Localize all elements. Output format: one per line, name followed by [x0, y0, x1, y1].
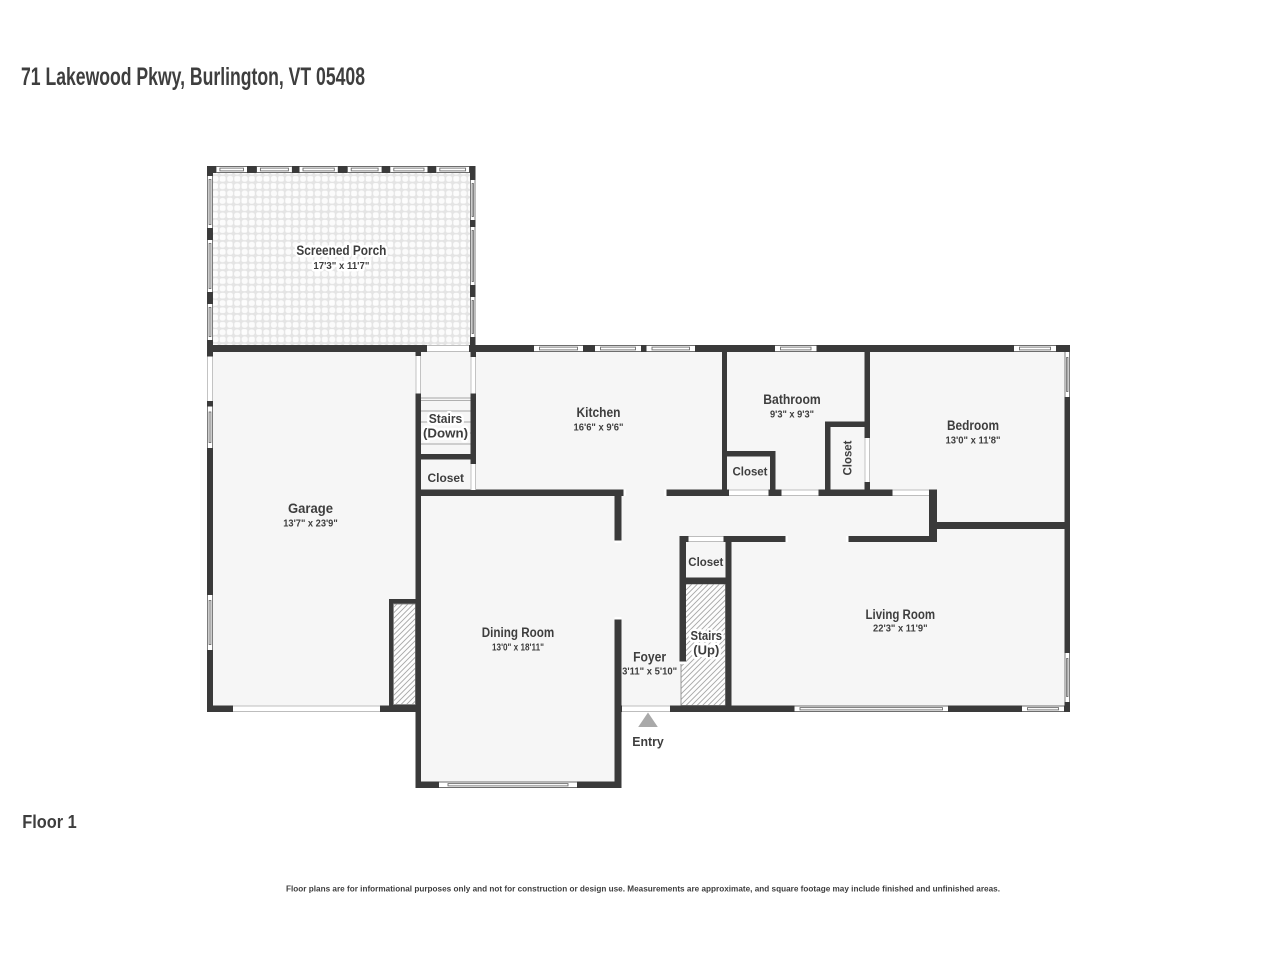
svg-text:13'7" x 23'9": 13'7" x 23'9" [283, 519, 338, 530]
svg-text:Stairs: Stairs [429, 411, 463, 426]
svg-text:22'3" x 11'9": 22'3" x 11'9" [873, 624, 928, 635]
svg-text:13'0" x 18'11": 13'0" x 18'11" [492, 643, 544, 654]
svg-text:Closet: Closet [733, 465, 768, 479]
svg-text:Closet: Closet [428, 471, 465, 485]
svg-text:17'3" x 11'7": 17'3" x 11'7" [313, 261, 369, 272]
svg-text:Screened Porch: Screened Porch [296, 243, 386, 258]
svg-text:Stairs: Stairs [691, 628, 723, 643]
svg-text:Floor plans are for informatio: Floor plans are for informational purpos… [286, 885, 1000, 894]
svg-text:Closet: Closet [688, 555, 723, 569]
svg-text:9'3" x 9'3": 9'3" x 9'3" [770, 410, 814, 421]
svg-text:Bedroom: Bedroom [947, 418, 999, 433]
svg-text:Kitchen: Kitchen [577, 405, 621, 420]
svg-text:(Up): (Up) [693, 643, 719, 658]
svg-text:16'6" x 9'6": 16'6" x 9'6" [574, 423, 624, 434]
svg-text:13'0" x 11'8": 13'0" x 11'8" [946, 436, 1001, 447]
svg-text:Entry: Entry [632, 735, 664, 749]
svg-text:Closet: Closet [841, 441, 855, 476]
svg-text:Bathroom: Bathroom [763, 392, 821, 407]
svg-text:Foyer: Foyer [633, 650, 667, 665]
svg-text:Floor 1: Floor 1 [22, 812, 77, 832]
svg-text:3'11" x 5'10": 3'11" x 5'10" [622, 667, 677, 678]
svg-text:Living Room: Living Room [866, 607, 936, 622]
svg-text:Dining Room: Dining Room [482, 625, 555, 640]
svg-text:Garage: Garage [288, 501, 333, 516]
svg-text:(Down): (Down) [423, 426, 468, 441]
svg-text:71 Lakewood Pkwy, Burlington,: 71 Lakewood Pkwy, Burlington, VT 05408 [21, 63, 365, 91]
